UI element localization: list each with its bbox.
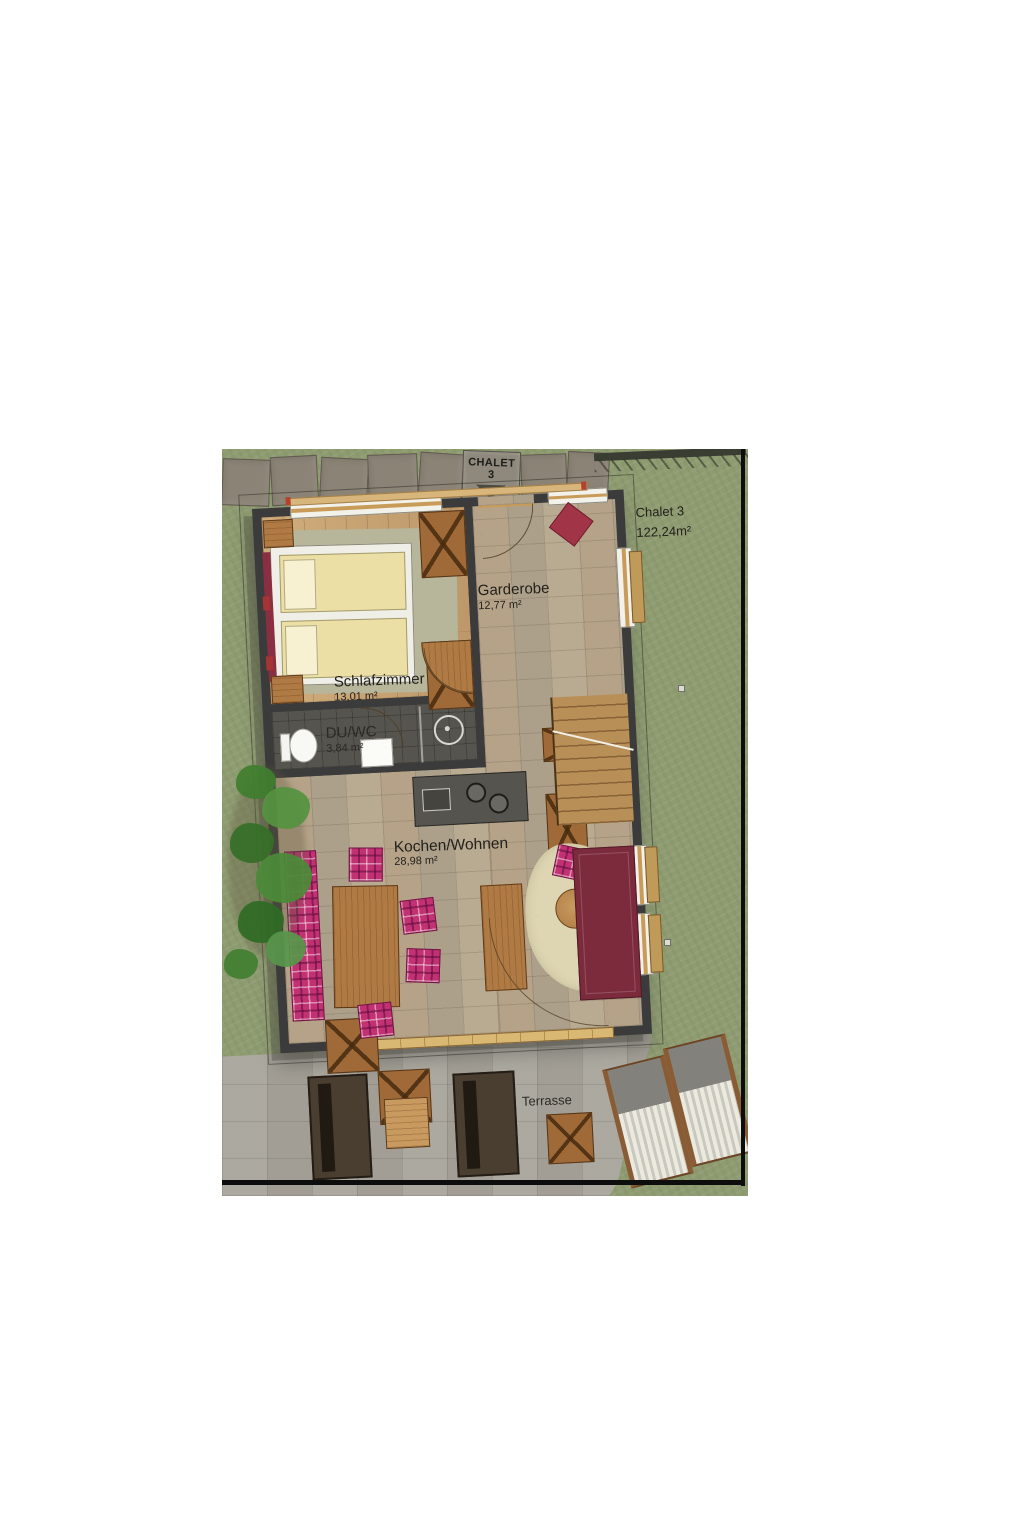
dining-chair — [357, 1002, 394, 1039]
room-label-schlafzimmer: Schlafzimmer 13,01 m² — [334, 671, 426, 703]
terrace-armchair — [307, 1074, 372, 1181]
hedge-line — [594, 449, 746, 461]
parcel-label: Chalet 3 122,24m² — [635, 501, 691, 543]
kitchen-counter — [412, 771, 528, 827]
nightstand — [263, 519, 294, 549]
window-box — [629, 551, 646, 624]
stove-burner — [466, 782, 487, 803]
parcel-area: 122,24m² — [636, 521, 692, 543]
room-label-garderobe: Garderobe 12,77 m² — [478, 581, 551, 613]
survey-marker — [664, 939, 671, 946]
property-line-bottom — [222, 1180, 745, 1185]
stove-burner — [488, 793, 509, 814]
kitchen-sink — [422, 788, 451, 811]
room-label-duwc: DU/WC 3,84 m² — [326, 724, 378, 755]
dining-chair — [400, 897, 438, 935]
chalet-sign-label: CHALET 3 — [463, 456, 520, 482]
staircase — [550, 694, 634, 826]
terrace-table — [384, 1097, 431, 1149]
double-bed — [270, 543, 416, 687]
page: CHALET 3 — [0, 0, 1024, 1536]
parcel-title: Chalet 3 — [635, 501, 691, 523]
beam-bracket — [581, 481, 586, 489]
mattress — [279, 552, 406, 613]
terrace-armchair — [452, 1070, 519, 1177]
kitchen-island-cabinet — [546, 1112, 595, 1164]
window-box — [648, 914, 664, 973]
nightstand — [271, 675, 304, 705]
pillow — [285, 625, 318, 676]
dining-table — [332, 885, 400, 1008]
dining-chair — [349, 848, 383, 882]
stepping-stone — [222, 458, 271, 507]
mattress — [281, 618, 408, 679]
site-plan: CHALET 3 — [222, 449, 748, 1196]
pillow — [283, 559, 316, 610]
tree — [222, 749, 322, 979]
room-label-terrasse: Terrasse — [522, 1093, 572, 1109]
dining-chair — [406, 948, 441, 983]
wardrobe — [418, 510, 467, 578]
wall-lamp — [263, 596, 271, 610]
wall-lamp — [266, 656, 274, 670]
beam-bracket — [285, 497, 290, 505]
survey-marker — [678, 685, 685, 692]
property-line-right — [741, 449, 745, 1186]
window-box — [644, 846, 660, 903]
room-label-kochen-wohnen: Kochen/Wohnen 28,98 m² — [394, 835, 509, 869]
